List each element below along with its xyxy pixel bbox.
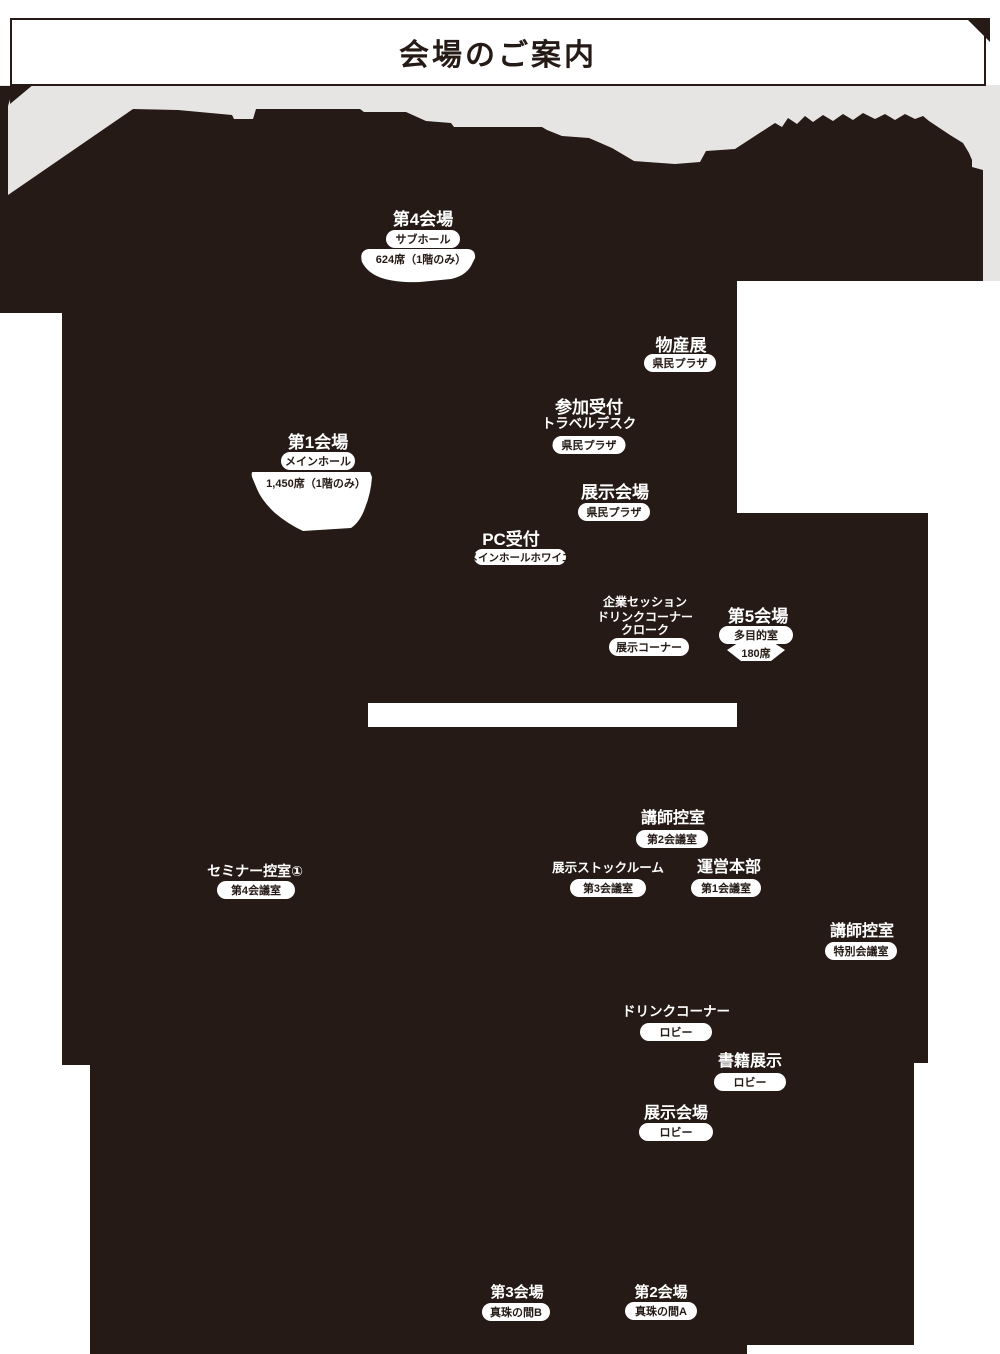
- title-corner-wedge-left: [10, 84, 34, 104]
- area-label-exhibition-lobby: 展示会場: [644, 1106, 708, 1123]
- page-title-box: 会場のご案内: [10, 18, 986, 86]
- hall1-capacity: 1,450席（1階のみ）: [266, 475, 366, 491]
- area-label-pc-reception: PC受付: [482, 531, 540, 549]
- area-label-bussanten: 物産展: [656, 337, 707, 355]
- room-badge-meeting2: 第2会議室: [636, 830, 708, 848]
- room-badge-meeting4: 第4会議室: [217, 881, 295, 899]
- area-label-books: 書籍展示: [718, 1054, 782, 1071]
- area-label-stock-room: 展示ストックルーム: [552, 862, 664, 875]
- room-badge-pearl-b: 真珠の間B: [482, 1303, 550, 1321]
- venue-label-hall1: 第1会場: [288, 434, 348, 452]
- room-badge-lobby-3: ロビー: [639, 1123, 713, 1141]
- room-badge-subhall: サブホール: [386, 230, 460, 248]
- room-badge-meeting1: 第1会議室: [691, 879, 761, 897]
- venue-label-hall2: 第2会場: [634, 1285, 687, 1301]
- room-badge-pearl-a: 真珠の間A: [625, 1302, 697, 1320]
- room-badge-kenmin-plaza-1: 県民プラザ: [644, 354, 716, 372]
- area-label-exhibition-plaza: 展示会場: [581, 484, 649, 502]
- area-label-drink-lobby: ドリンクコーナー: [622, 1005, 730, 1019]
- room-badge-multipurpose: 多目的室: [719, 626, 793, 644]
- room-badge-lobby-1: ロビー: [640, 1023, 712, 1041]
- room-badge-kenmin-plaza-3: 県民プラザ: [578, 503, 650, 521]
- area-label-lecturer-special: 講師控室: [830, 924, 894, 941]
- room-badge-mainhall-foyer: メインホールホワイエ: [474, 549, 566, 565]
- title-corner-wedge-right: [962, 18, 990, 42]
- room-badge-meeting3: 第3会議室: [570, 879, 646, 897]
- area-label-cloak: クローク: [621, 624, 669, 637]
- room-badge-mainhall: メインホール: [281, 452, 355, 470]
- hall4-capacity: 624席（1階のみ）: [376, 251, 466, 267]
- venue-label-hall3: 第3会場: [490, 1285, 543, 1301]
- area-label-corporate-session: 企業セッション: [603, 596, 687, 609]
- venue-map: [0, 0, 1000, 1354]
- area-label-hq: 運営本部: [697, 860, 761, 877]
- room-badge-kenmin-plaza-2: 県民プラザ: [553, 436, 626, 454]
- area-label-seminar-waiting: セミナー控室①: [207, 864, 303, 879]
- room-badge-lobby-2: ロビー: [714, 1073, 786, 1091]
- page-title: 会場のご案内: [399, 30, 597, 74]
- area-label-reception: 参加受付: [555, 399, 623, 417]
- room-badge-special-meeting: 特別会議室: [825, 942, 897, 960]
- area-label-travel-desk: トラベルデスク: [542, 417, 637, 431]
- area-label-lecturer-room2: 講師控室: [641, 811, 705, 828]
- venue-label-hall5: 第5会場: [728, 608, 788, 626]
- area-label-drink-corner-1f: ドリンクコーナー: [597, 611, 693, 624]
- room-badge-exhibition-corner: 展示コーナー: [609, 638, 689, 656]
- venue-label-hall4: 第4会場: [393, 211, 453, 229]
- floor-gap-bar: [368, 703, 737, 727]
- hall5-capacity: 180席: [741, 645, 770, 661]
